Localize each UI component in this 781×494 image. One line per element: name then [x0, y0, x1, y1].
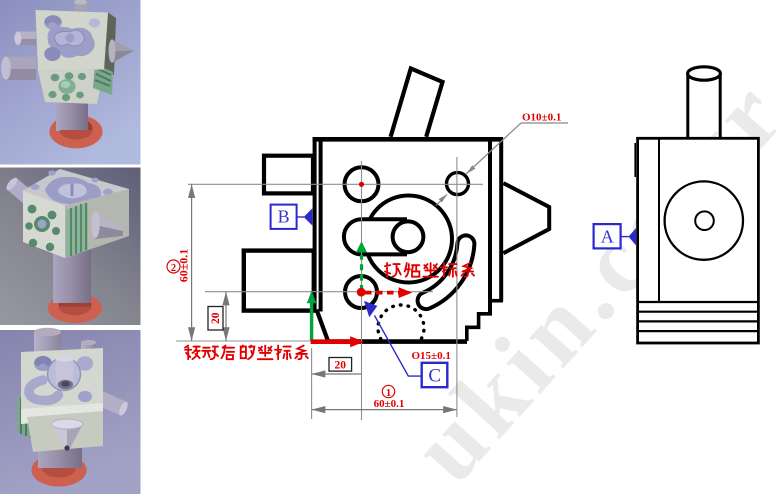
svg-text:60±0.1: 60±0.1 — [374, 398, 405, 410]
svg-text:A: A — [601, 226, 614, 246]
svg-text:O10±0.1: O10±0.1 — [522, 112, 561, 124]
svg-text:B: B — [278, 207, 290, 227]
svg-text:20: 20 — [210, 312, 222, 324]
svg-text:2: 2 — [171, 263, 176, 274]
svg-text:O15±0.1: O15±0.1 — [412, 350, 451, 362]
svg-text:60±0.1: 60±0.1 — [177, 249, 191, 283]
svg-text:20: 20 — [335, 359, 347, 371]
svg-text:C: C — [428, 366, 441, 387]
